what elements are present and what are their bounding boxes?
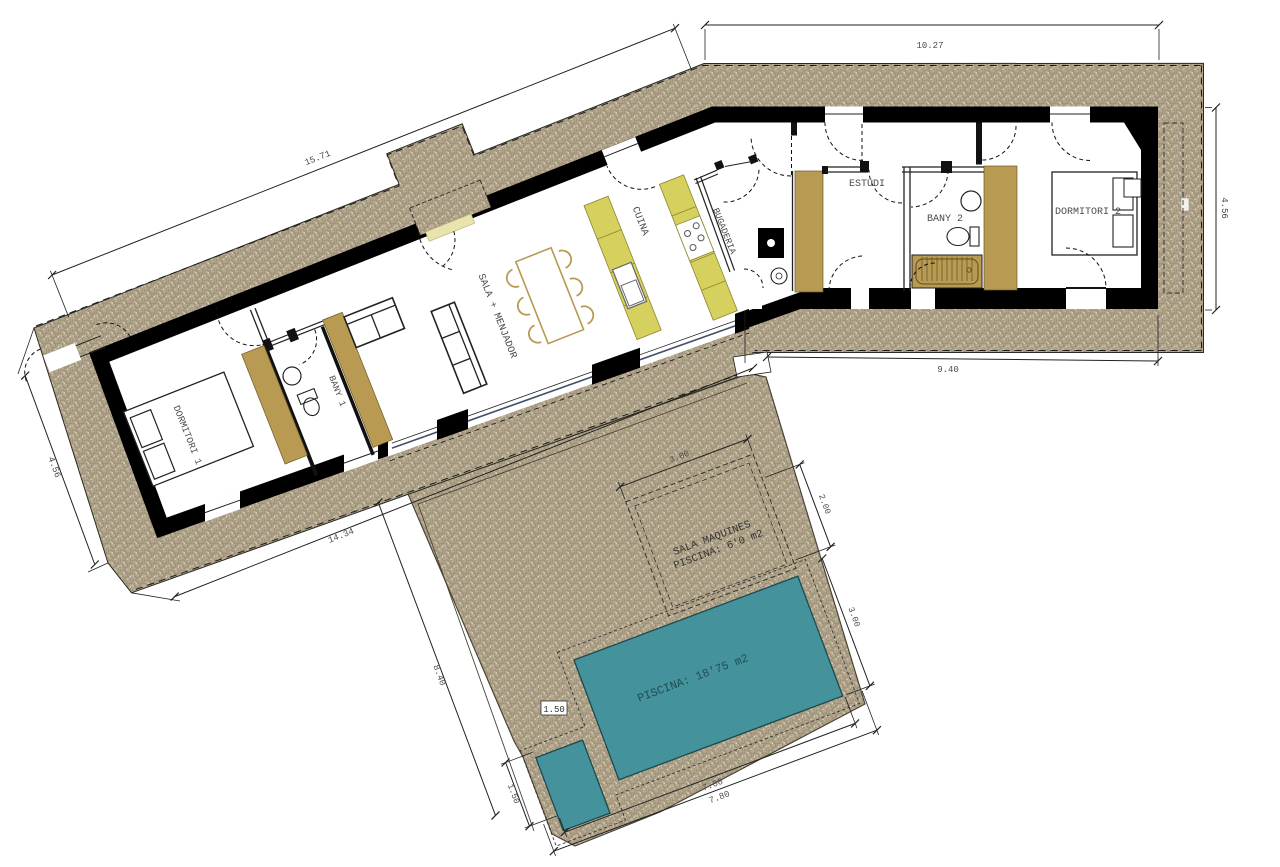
svg-text:1.50: 1.50 — [543, 705, 565, 715]
svg-text:10.27: 10.27 — [916, 41, 943, 51]
svg-text:4.56: 4.56 — [1219, 197, 1229, 219]
svg-text:DORMITORI 2: DORMITORI 2 — [1055, 207, 1121, 218]
svg-text:ESTUDI: ESTUDI — [849, 179, 885, 190]
svg-text:9.40: 9.40 — [937, 365, 959, 375]
svg-text:BANY 2: BANY 2 — [927, 214, 963, 225]
